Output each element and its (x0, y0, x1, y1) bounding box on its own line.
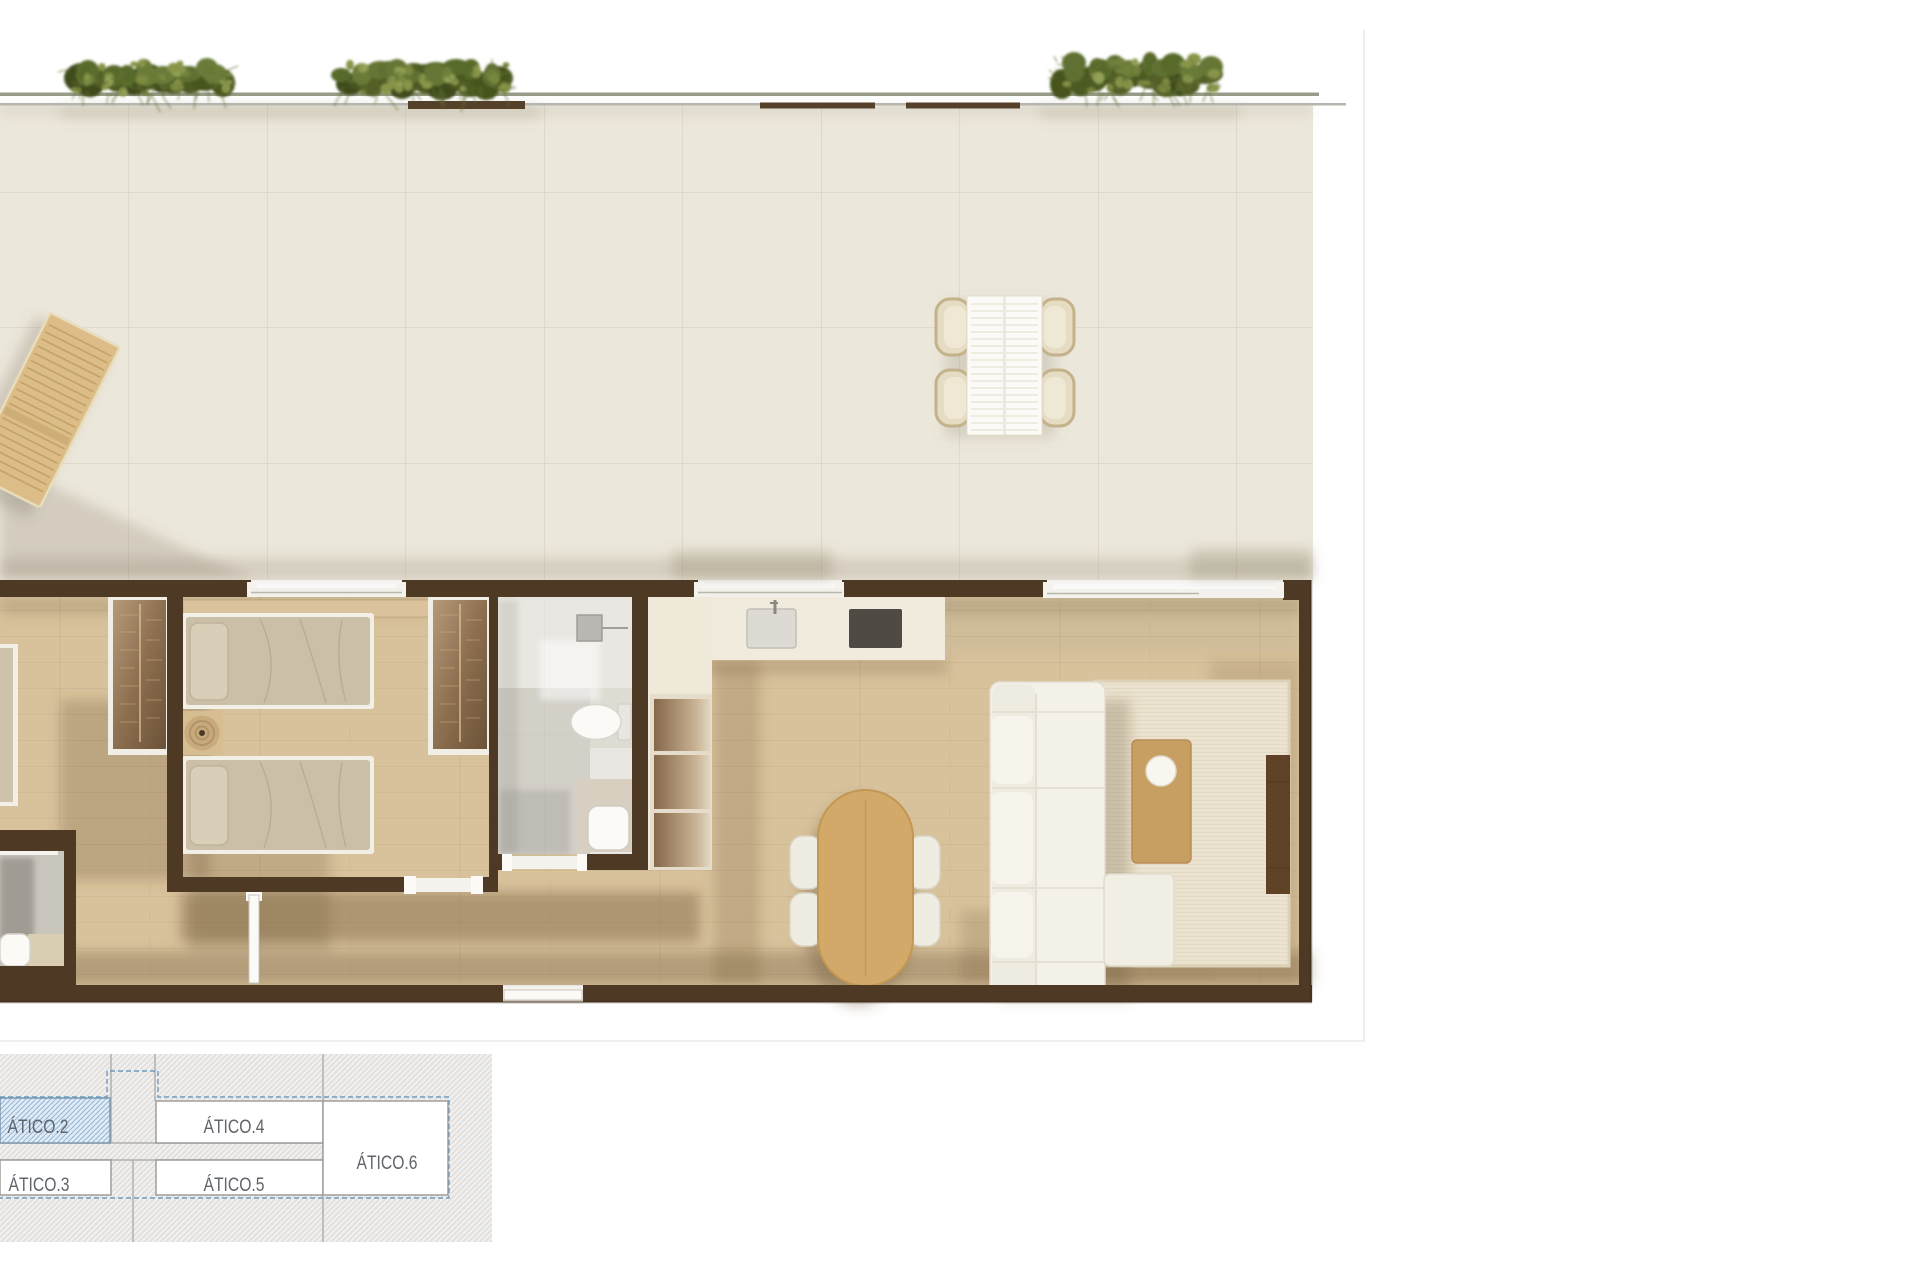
svg-text:ÁTICO.3: ÁTICO.3 (9, 1175, 70, 1196)
svg-text:ÁTICO.5: ÁTICO.5 (204, 1175, 265, 1196)
svg-text:ÁTICO.6: ÁTICO.6 (357, 1153, 418, 1174)
svg-text:ÁTICO.4: ÁTICO.4 (204, 1117, 265, 1138)
svg-text:ÁTICO.2: ÁTICO.2 (8, 1117, 69, 1138)
